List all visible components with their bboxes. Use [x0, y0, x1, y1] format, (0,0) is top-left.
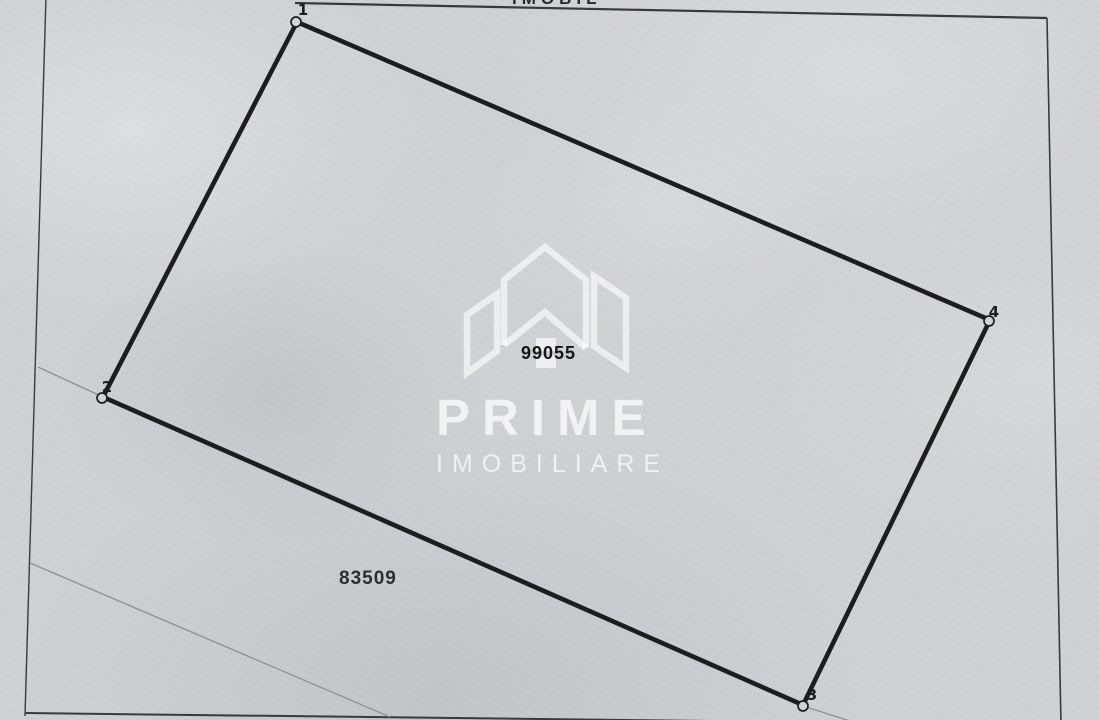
- corner-label-1: 1: [298, 1, 308, 19]
- parcel-number-label: 99055: [521, 343, 576, 364]
- frame-border-bottom: [25, 713, 880, 720]
- watermark-brand-name: PRIME: [436, 388, 666, 447]
- header-text-fragment: IMOBIL: [512, 0, 742, 8]
- frame-border-right: [1047, 18, 1061, 720]
- faint-diagonal-line: [30, 563, 390, 717]
- faint-line-to-corner-2: [38, 367, 101, 396]
- logo-panel-left: [467, 294, 497, 373]
- corner-label-4: 4: [989, 303, 999, 321]
- logo-panel-right: [594, 276, 626, 368]
- corner-label-2: 2: [102, 378, 112, 396]
- faint-line-from-corner-3: [803, 706, 850, 720]
- watermark-brand-subtitle: IMOBILIARE: [436, 450, 676, 479]
- cropped-header-text: IMOBIL: [512, 0, 742, 8]
- frame-border-left: [25, 0, 46, 716]
- adjacent-parcel-number-label: 83509: [339, 568, 397, 590]
- scanned-cadastral-plan: IMOBIL 1 2 3 4: [0, 0, 1099, 720]
- corner-label-3: 3: [807, 686, 817, 704]
